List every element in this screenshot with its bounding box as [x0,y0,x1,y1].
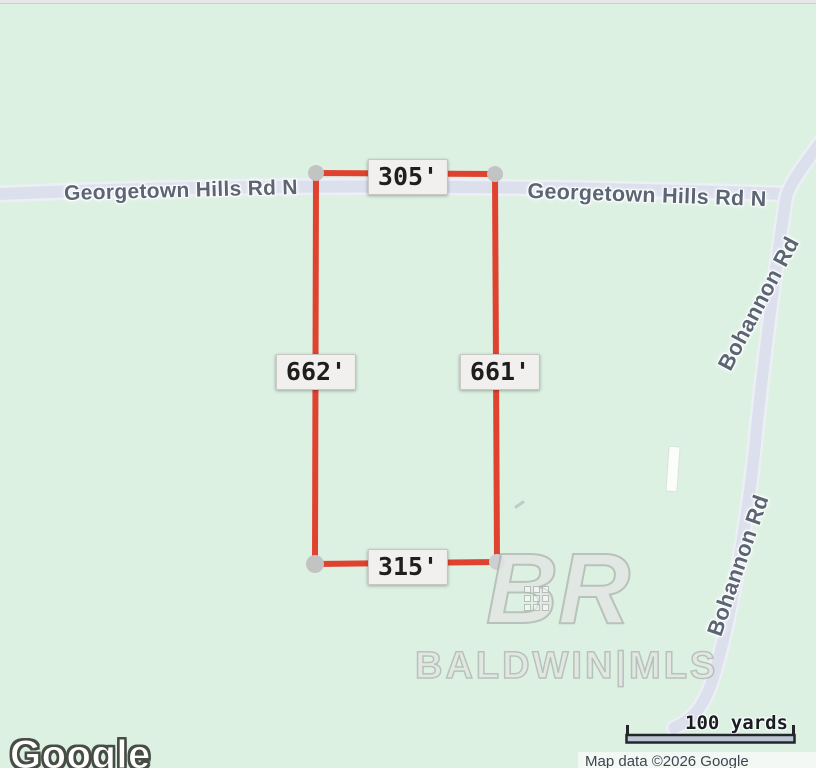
parcel-vertex-top-right [487,166,503,182]
logo-letter-r: R [558,544,630,634]
map-attribution-text: Map data ©2026 Google [578,752,816,768]
measurement-bottom: 315' [368,549,448,585]
baldwin-mls-logo: B R [486,544,656,644]
measurement-top: 305' [368,159,448,195]
baldwin-mls-watermark-text: BALDWIN|MLS [415,645,715,688]
map-attribution: Map data ©2026 Google [578,752,816,768]
measurement-left: 662' [276,354,356,390]
logo-window-grid-icon [524,586,549,611]
parcel-vertex-bottom-left [306,555,324,573]
scale-bar [624,722,800,746]
google-logo[interactable]: Google [10,733,151,768]
road-bohannon-path [674,138,816,728]
map-canvas[interactable]: Georgetown Hills Rd N Georgetown Hills R… [0,0,816,768]
road-bohannon-casing [674,138,816,728]
measurement-right: 661' [460,354,540,390]
